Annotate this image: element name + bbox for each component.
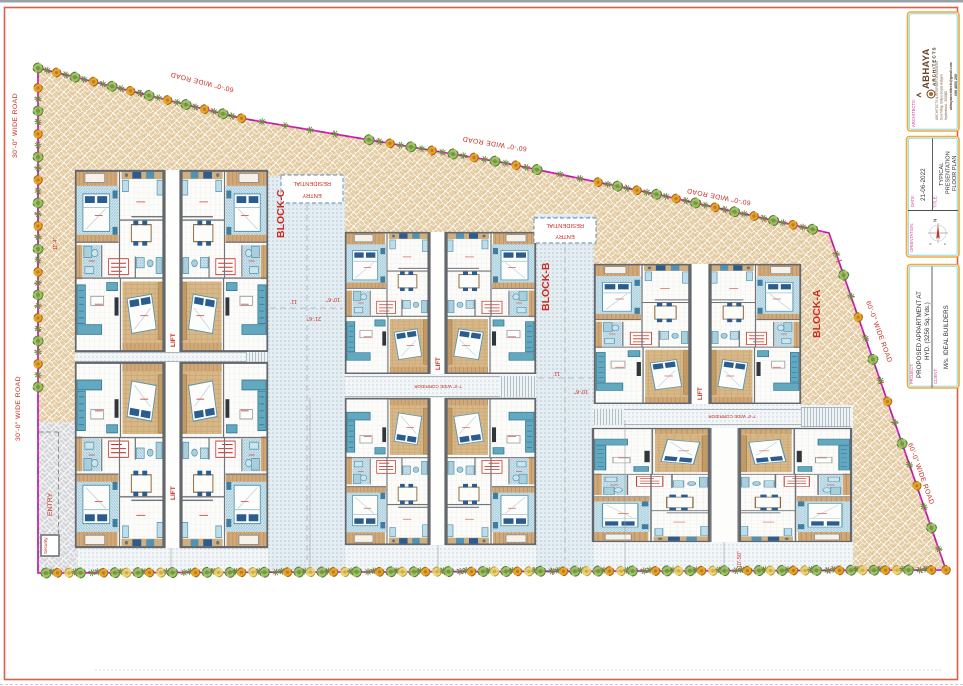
svg-text:11'-4": 11'-4" [53, 237, 59, 250]
svg-text:ENTRY: ENTRY [555, 233, 575, 239]
svg-text:ORIENTATION:: ORIENTATION: [909, 223, 914, 252]
svg-text:TITLE:: TITLE: [933, 195, 938, 208]
svg-text:7'-0" WIDE CORRIDOR: 7'-0" WIDE CORRIDOR [708, 414, 756, 419]
svg-text:PRESENTATION: PRESENTATION [946, 151, 952, 194]
svg-text:RESIDENTIAL: RESIDENTIAL [545, 222, 584, 228]
svg-text:FLOOR PLAN: FLOOR PLAN [952, 156, 958, 191]
svg-text:PROPOSED APPARTMENT AT: PROPOSED APPARTMENT AT [916, 291, 923, 378]
svg-text:BLOCK-A: BLOCK-A [811, 289, 823, 338]
svg-text:CLIENT:: CLIENT: [933, 368, 938, 384]
svg-text:RESIDENTIAL: RESIDENTIAL [292, 180, 331, 186]
svg-text:11': 11' [290, 298, 297, 304]
svg-text:TYPICAL: TYPICAL [939, 163, 945, 186]
svg-text:LIFT: LIFT [698, 387, 704, 400]
svg-text:M/s. IDEAL BUILDERS: M/s. IDEAL BUILDERS [943, 305, 950, 369]
svg-text:N: N [933, 219, 938, 222]
svg-text:LIFT: LIFT [170, 333, 177, 347]
svg-text:30'-0" WIDE ROAD: 30'-0" WIDE ROAD [12, 93, 19, 158]
svg-text:ENTRY: ENTRY [302, 192, 322, 198]
svg-text:11': 11' [553, 370, 560, 376]
svg-text:10'-6": 10'-6" [326, 296, 340, 302]
svg-text:10'-50": 10'-50" [737, 551, 743, 568]
svg-text:abhayaarchitects@gmail.com: abhayaarchitects@gmail.com [949, 62, 953, 110]
svg-text:DATE:: DATE: [910, 195, 915, 207]
svg-text:ENTRY: ENTRY [47, 492, 54, 516]
svg-text:Security: Security [43, 537, 48, 554]
svg-text:BLOCK-B: BLOCK-B [540, 262, 552, 311]
svg-text:ABHAYA: ABHAYA [921, 48, 932, 89]
svg-text:BLOCK-C: BLOCK-C [275, 189, 287, 238]
svg-text:Devi Nilay, Shilpa Gupta Aaliy: Devi Nilay, Shilpa Gupta Aaliyah [940, 74, 944, 120]
svg-text:HYD. (3256 Sq.Yds.): HYD. (3256 Sq.Yds.) [924, 302, 931, 360]
svg-text:ARCHITECTS:: ARCHITECTS: [911, 99, 916, 127]
svg-text:W: W [929, 242, 932, 246]
svg-text:E: E [944, 242, 946, 246]
svg-text:PROJECT:: PROJECT: [909, 364, 914, 384]
svg-text:7'-0" WIDE CORRIDOR: 7'-0" WIDE CORRIDOR [414, 384, 462, 389]
svg-text:21'-6": 21'-6" [307, 315, 321, 321]
svg-text:LIFT: LIFT [170, 486, 177, 500]
svg-text:30'-0" WIDE ROAD: 30'-0" WIDE ROAD [15, 376, 22, 441]
svg-text:ARCHITECTS & INTERIOR DESIGNER: ARCHITECTS & INTERIOR DESIGNERS [935, 61, 939, 120]
svg-text:099 4850 299: 099 4850 299 [954, 74, 958, 96]
svg-text:Hyderabad - 500060: Hyderabad - 500060 [944, 91, 948, 120]
svg-text:10'-6": 10'-6" [574, 388, 588, 394]
svg-text:LIFT: LIFT [436, 357, 442, 370]
svg-text:21-06-2022: 21-06-2022 [920, 168, 927, 201]
